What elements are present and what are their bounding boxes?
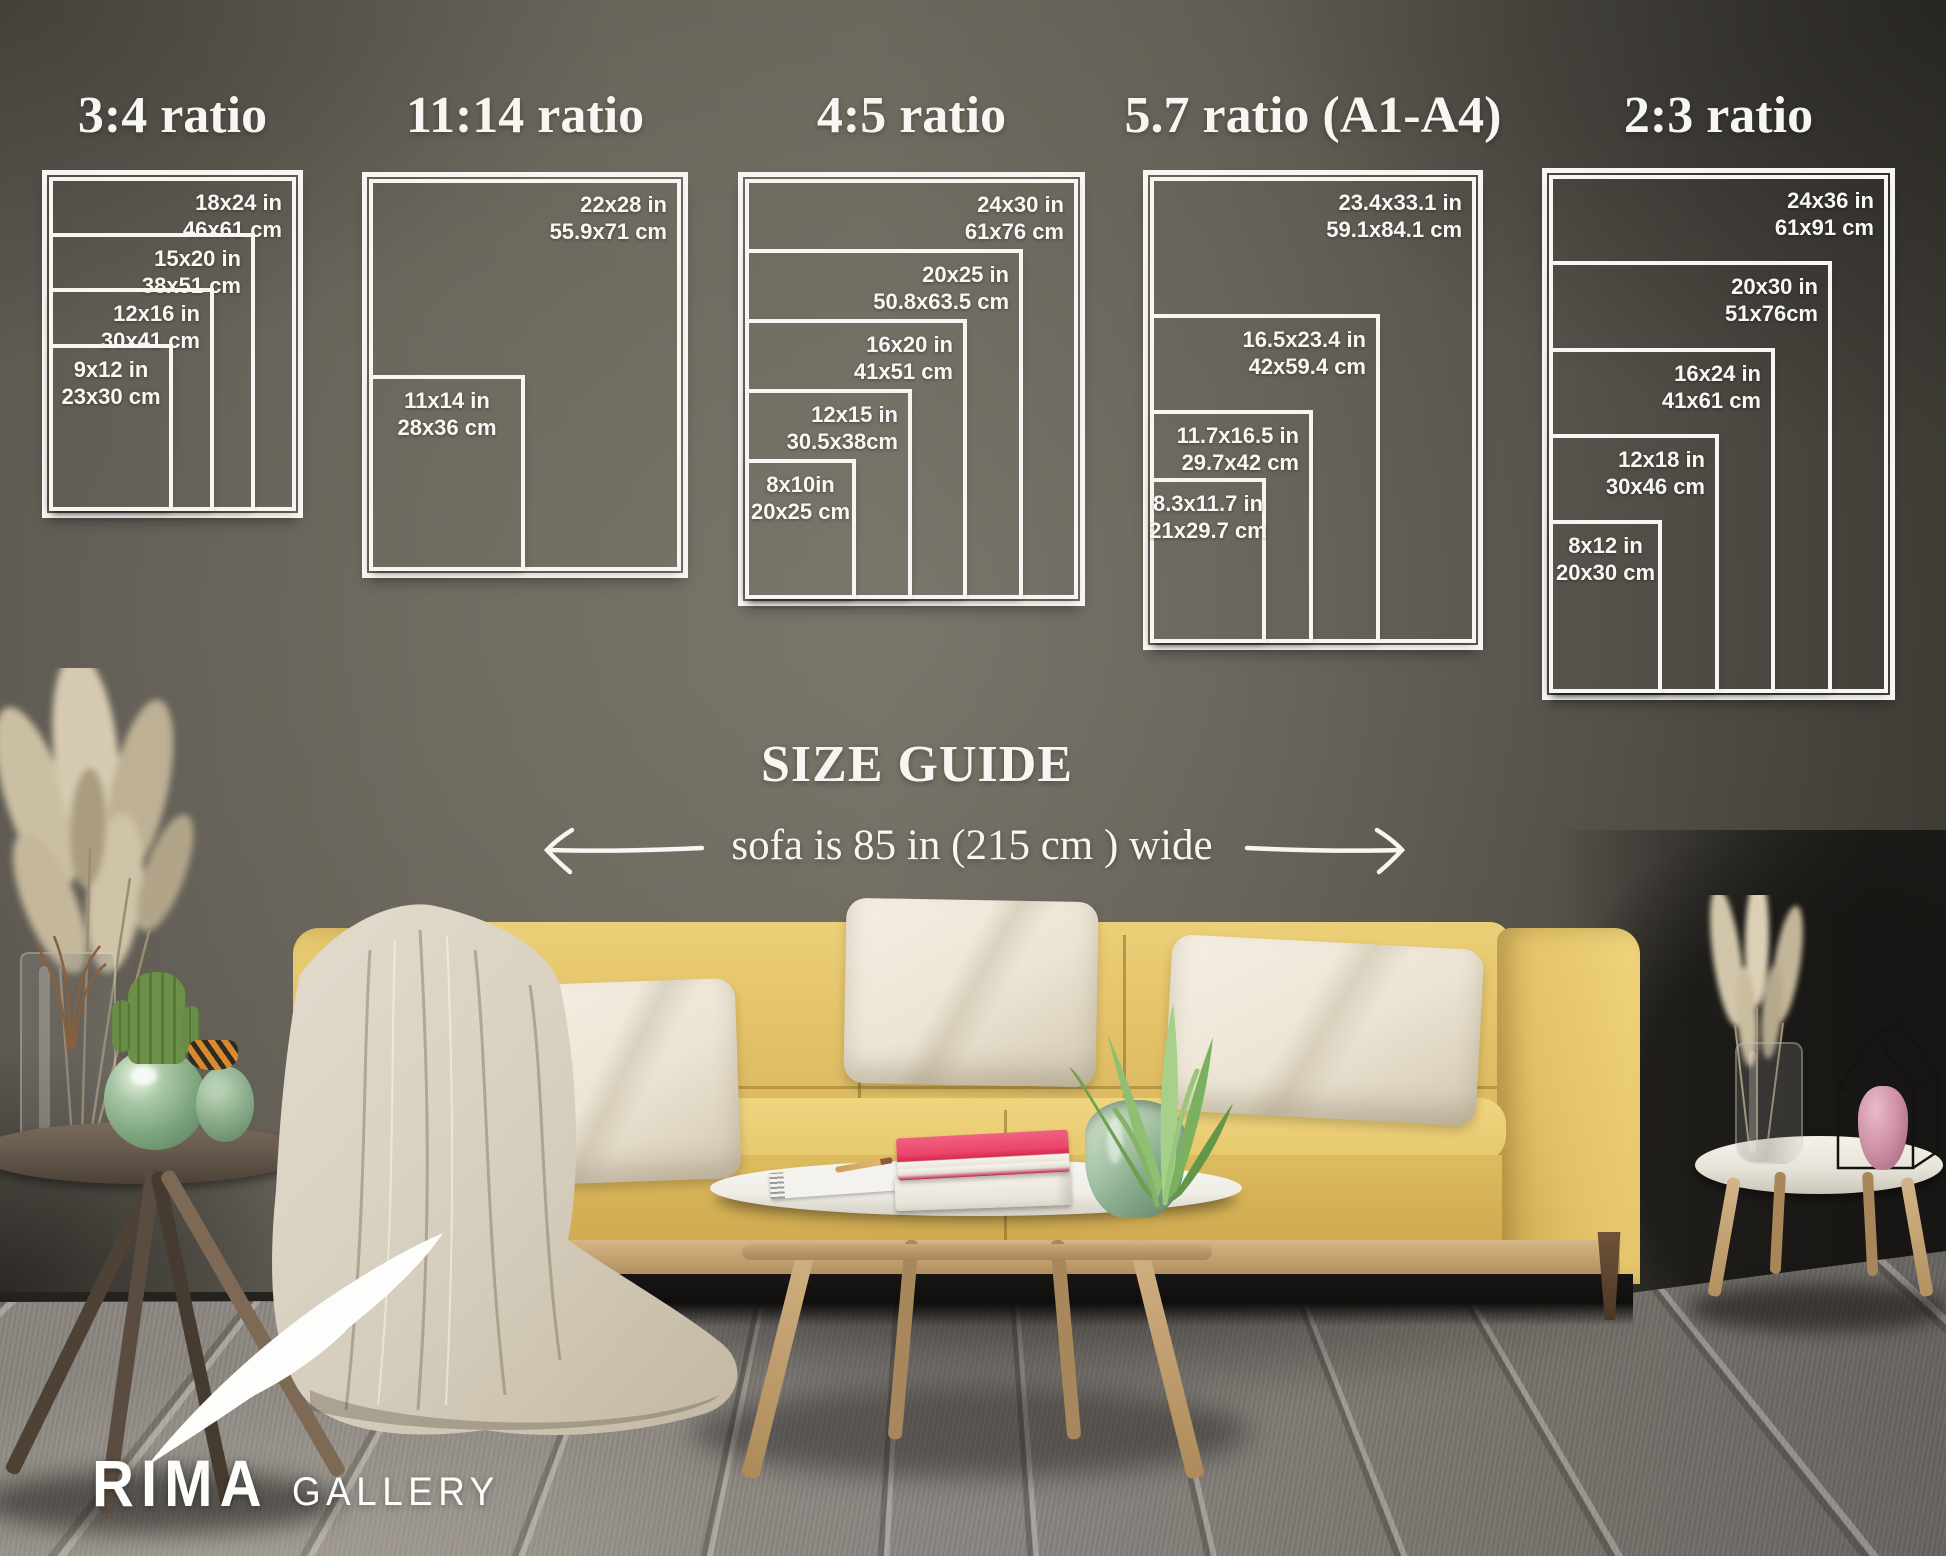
ratio-panel-title: 2:3 ratio: [1419, 84, 1946, 148]
size-box: 8x12 in20x30 cm: [1549, 520, 1662, 693]
rima-swoosh-icon: [130, 1222, 460, 1478]
size-box: 8.3x11.7 in21x29.7 cm: [1150, 478, 1266, 643]
ratio-panel: 24x30 in61x76 cm20x25 in50.8x63.5 cm16x2…: [738, 172, 1085, 606]
size-label: 8x12 in20x30 cm: [1523, 532, 1688, 587]
size-box: 8x10in20x25 cm: [745, 459, 856, 599]
arrow-left-icon: [548, 848, 702, 851]
ratio-panel: 22x28 in55.9x71 cm11x14 in28x36 cm: [362, 172, 688, 578]
size-label: 12x15 in30.5x38cm: [787, 401, 898, 456]
ratio-panel: 24x36 in61x91 cm20x30 in51x76cm16x24 in4…: [1542, 168, 1895, 700]
size-label: 16x24 in41x61 cm: [1662, 360, 1761, 415]
width-arrows: [520, 818, 1430, 890]
size-label: 12x18 in30x46 cm: [1606, 446, 1705, 501]
ratio-panel: 18x24 in46x61 cm15x20 in38x51 cm12x16 in…: [42, 170, 303, 518]
ratio-panel: 23.4x33.1 in59.1x84.1 cm16.5x23.4 in42x5…: [1143, 170, 1483, 650]
size-label: 20x25 in50.8x63.5 cm: [873, 261, 1009, 316]
size-label: 24x30 in61x76 cm: [965, 191, 1064, 246]
size-guide-poster: 3:4 ratio18x24 in46x61 cm15x20 in38x51 c…: [0, 0, 1946, 1556]
size-label: 9x12 in23x30 cm: [23, 356, 199, 411]
logo-brand-text: RIMA: [92, 1450, 269, 1516]
size-label: 11x14 in28x36 cm: [343, 387, 551, 442]
size-label: 24x36 in61x91 cm: [1775, 187, 1874, 242]
size-box: 11x14 in28x36 cm: [369, 375, 525, 571]
logo-suffix-text: GALLERY: [292, 1470, 500, 1514]
size-label: 23.4x33.1 in59.1x84.1 cm: [1326, 189, 1462, 244]
size-label: 11.7x16.5 in29.7x42 cm: [1177, 422, 1299, 477]
size-label: 16.5x23.4 in42x59.4 cm: [1242, 326, 1366, 381]
size-label: 8.3x11.7 in21x29.7 cm: [1124, 490, 1292, 545]
size-label: 8x10in20x25 cm: [719, 471, 882, 526]
size-label: 22x28 in55.9x71 cm: [550, 191, 667, 246]
size-label: 20x30 in51x76cm: [1725, 273, 1818, 328]
arrow-right-icon: [1247, 848, 1401, 851]
size-label: 16x20 in41x51 cm: [854, 331, 953, 386]
size-box: 9x12 in23x30 cm: [49, 344, 173, 511]
